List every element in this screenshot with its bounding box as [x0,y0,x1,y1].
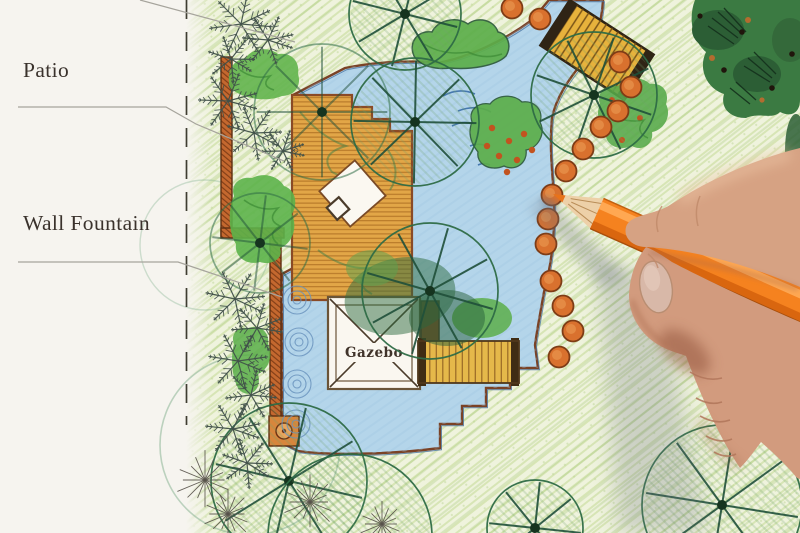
wall-fountain-label: Wall Fountain [23,211,150,236]
gazebo-label: Gazebo [345,345,403,361]
patio-label: Patio [23,58,69,83]
plan-drawing: Gazebo [0,0,800,533]
dock-boardwalk [418,338,519,386]
landscape-plan-photo: Gazebo [0,0,800,533]
